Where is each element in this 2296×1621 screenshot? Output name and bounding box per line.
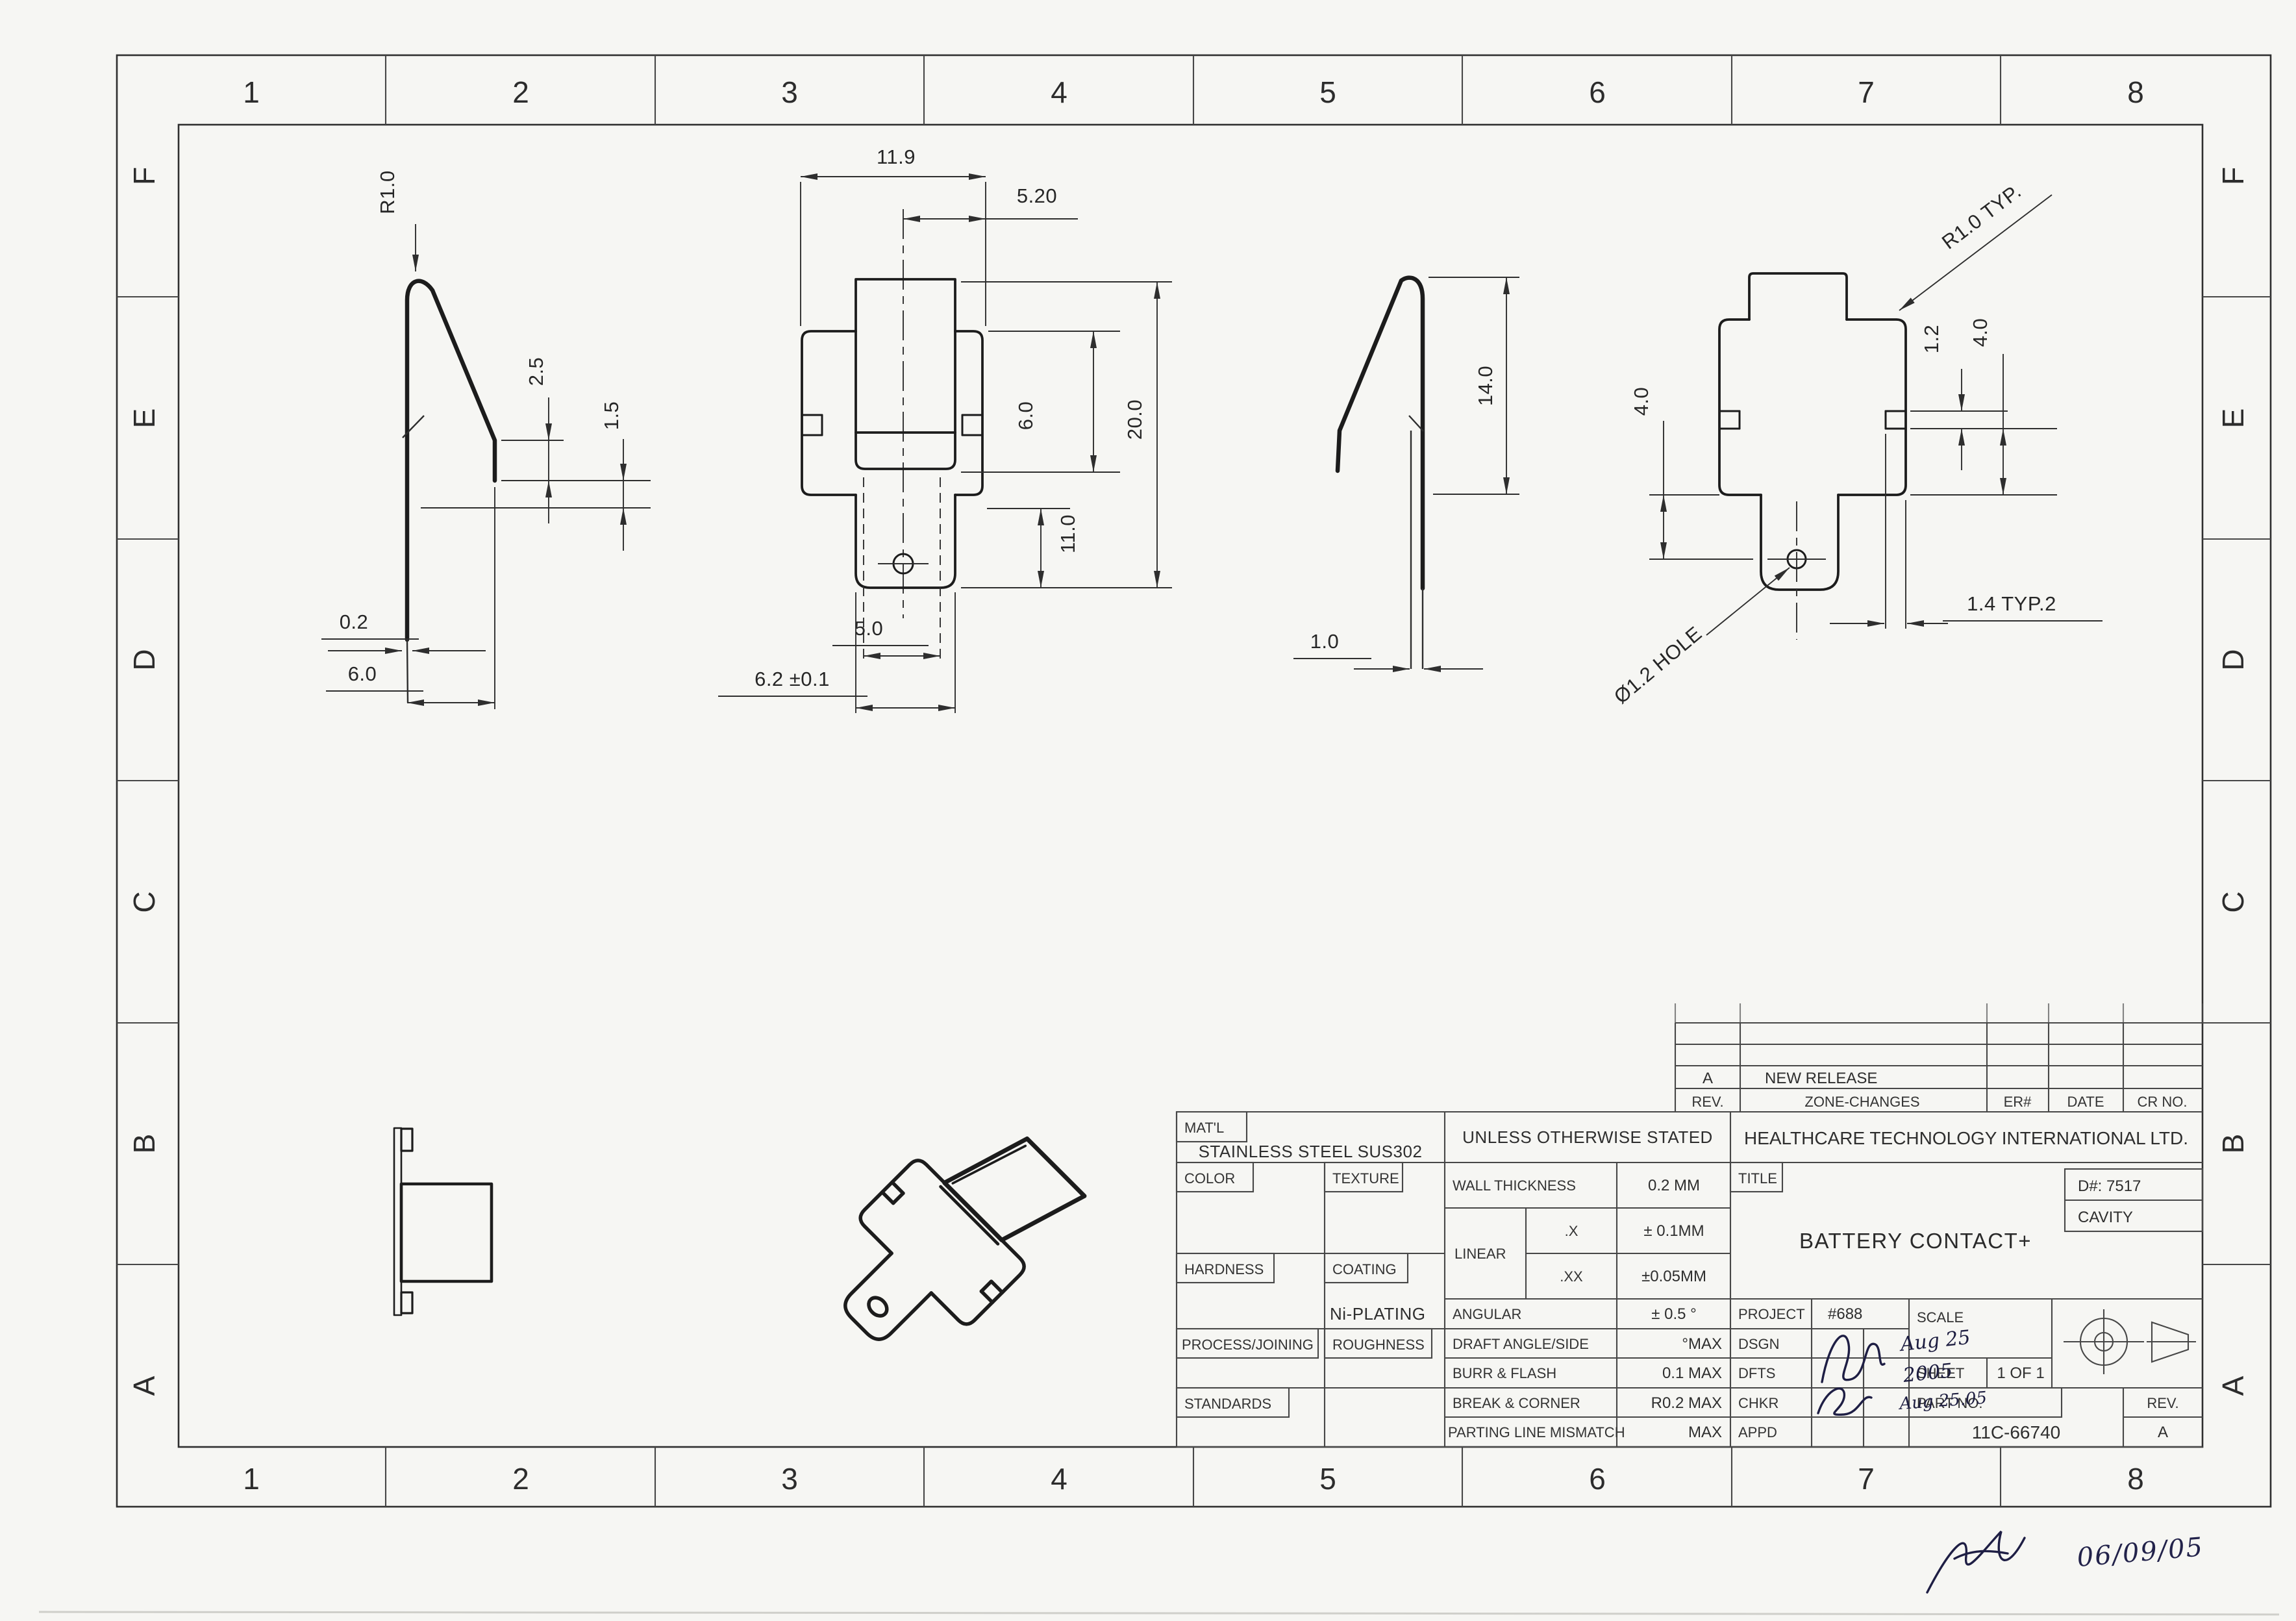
color-label: COLOR — [1184, 1170, 1235, 1187]
angular-value: ± 0.5 ° — [1651, 1305, 1696, 1323]
zone-col: 8 — [2127, 1462, 2144, 1496]
d-number: D#: 7517 — [2078, 1177, 2141, 1195]
wall-label: WALL THICKNESS — [1453, 1177, 1576, 1194]
zone-col: 7 — [1858, 75, 1875, 109]
cavity: CAVITY — [2078, 1209, 2133, 1226]
dim-label-radius: R1.0 — [376, 170, 399, 214]
zone-row: E — [2216, 408, 2250, 429]
coating-label: COATING — [1332, 1261, 1397, 1277]
zone-col: 5 — [1319, 75, 1336, 109]
uos-header: UNLESS OTHERWISE STATED — [1462, 1127, 1713, 1147]
zone-col: 2 — [512, 1462, 529, 1496]
chkr-label: CHKR — [1738, 1395, 1778, 1411]
project-value: #688 — [1828, 1305, 1862, 1323]
dim-label: 1.5 — [600, 401, 623, 431]
dim-label: 2.5 — [525, 357, 547, 386]
burr-value: 0.1 MAX — [1662, 1364, 1722, 1382]
dim-label-width: 11.9 — [877, 145, 916, 168]
revision-entry-rev: A — [1703, 1070, 1713, 1087]
zone-row: D — [127, 649, 161, 670]
zone-col: 1 — [243, 1462, 260, 1496]
company-name: HEALTHCARE TECHNOLOGY INTERNATIONAL LTD. — [1744, 1128, 2188, 1148]
zone-col: 3 — [781, 75, 798, 109]
zone-row: F — [2216, 167, 2250, 185]
revision-header-cr: CR NO. — [2138, 1094, 2188, 1110]
burr-label: BURR & FLASH — [1453, 1365, 1556, 1381]
linear-label: LINEAR — [1454, 1246, 1506, 1262]
dim-label-thickness: 0.2 — [340, 610, 369, 633]
dsgn-label: DSGN — [1738, 1336, 1780, 1352]
roughness-label: ROUGHNESS — [1332, 1337, 1425, 1353]
zone-col: 2 — [512, 75, 529, 109]
zone-col: 7 — [1858, 1462, 1875, 1496]
parting-value: MAX — [1688, 1424, 1722, 1441]
angular-label: ANGULAR — [1453, 1306, 1521, 1322]
matl-label: MAT'L — [1184, 1120, 1224, 1136]
dim-label-offset-left: 4.0 — [1630, 387, 1653, 416]
zone-row: C — [2216, 891, 2250, 912]
drawing-title: BATTERY CONTACT+ — [1799, 1229, 2032, 1253]
zone-row: B — [127, 1134, 161, 1154]
dim-label-slot: 1.2 — [1920, 325, 1943, 354]
dim-label-height: 14.0 — [1474, 366, 1497, 406]
zone-col: 5 — [1319, 1462, 1336, 1496]
zone-row: A — [2216, 1376, 2250, 1396]
zone-col: 4 — [1051, 1462, 1067, 1496]
dim-label-edge: 1.4 TYP.2 — [1967, 592, 2056, 615]
process-label: PROCESS/JOINING — [1182, 1337, 1314, 1353]
dfts-label: DFTS — [1738, 1365, 1775, 1381]
zone-col: 8 — [2127, 75, 2144, 109]
linear-xx-label: .XX — [1560, 1268, 1583, 1285]
engineering-drawing-sheet: 1 2 3 4 5 6 7 8 1 2 3 4 5 6 7 8 F E D C … — [0, 0, 2296, 1621]
project-label: PROJECT — [1738, 1306, 1805, 1322]
revision-header-date: DATE — [2067, 1094, 2104, 1110]
draft-label: DRAFT ANGLE/SIDE — [1453, 1336, 1589, 1352]
title-label: TITLE — [1738, 1170, 1777, 1187]
scale-label: SCALE — [1917, 1309, 1964, 1326]
material-value: STAINLESS STEEL SUS302 — [1199, 1142, 1423, 1161]
texture-label: TEXTURE — [1332, 1170, 1399, 1187]
zone-row: F — [127, 167, 161, 185]
zone-row: C — [127, 891, 161, 912]
zone-row: E — [127, 408, 161, 429]
hardness-label: HARDNESS — [1184, 1261, 1264, 1277]
dim-label-upper: 6.0 — [1014, 401, 1037, 431]
draft-value: °MAX — [1682, 1335, 1722, 1353]
break-label: BREAK & CORNER — [1453, 1395, 1580, 1411]
dim-label-offset-right: 4.0 — [1969, 318, 1991, 347]
rev-value: A — [2158, 1424, 2168, 1441]
zone-col: 1 — [243, 75, 260, 109]
dim-label-gap: 1.0 — [1310, 630, 1340, 653]
dim-label-half-width: 5.20 — [1017, 184, 1057, 207]
parting-label: PARTING LINE MISMATCH — [1448, 1424, 1625, 1440]
revision-header-er: ER# — [2004, 1094, 2032, 1110]
revision-header-rev: REV. — [1691, 1094, 1723, 1110]
zone-col: 3 — [781, 1462, 798, 1496]
part-no-value: 11C-66740 — [1972, 1422, 2060, 1442]
dim-label-lower: 11.0 — [1056, 514, 1079, 553]
break-value: R0.2 MAX — [1651, 1394, 1722, 1412]
dim-label-height: 20.0 — [1123, 399, 1146, 440]
revision-entry-change: NEW RELEASE — [1765, 1070, 1877, 1087]
zone-row: B — [2216, 1134, 2250, 1154]
sheet-value: 1 OF 1 — [1997, 1364, 2044, 1382]
zone-col: 4 — [1051, 75, 1067, 109]
coating-value: Ni-PLATING — [1330, 1304, 1426, 1324]
zone-col: 6 — [1589, 75, 1606, 109]
dim-label-tab: 5.0 — [855, 617, 884, 640]
zone-row: D — [2216, 649, 2250, 670]
linear-x-value: ± 0.1MM — [1643, 1222, 1704, 1240]
zone-col: 6 — [1589, 1462, 1606, 1496]
revision-header-zone: ZONE-CHANGES — [1804, 1094, 1919, 1110]
dim-label-depth: 6.0 — [348, 662, 377, 685]
zone-row: A — [127, 1376, 161, 1396]
standards-label: STANDARDS — [1184, 1396, 1271, 1412]
dim-label-base: 6.2 ±0.1 — [755, 668, 830, 690]
rev-label: REV. — [2147, 1395, 2178, 1411]
linear-x-label: .X — [1565, 1223, 1578, 1239]
wall-value: 0.2 MM — [1648, 1177, 1700, 1194]
appd-label: APPD — [1738, 1424, 1777, 1440]
linear-xx-value: ±0.05MM — [1641, 1268, 1706, 1285]
